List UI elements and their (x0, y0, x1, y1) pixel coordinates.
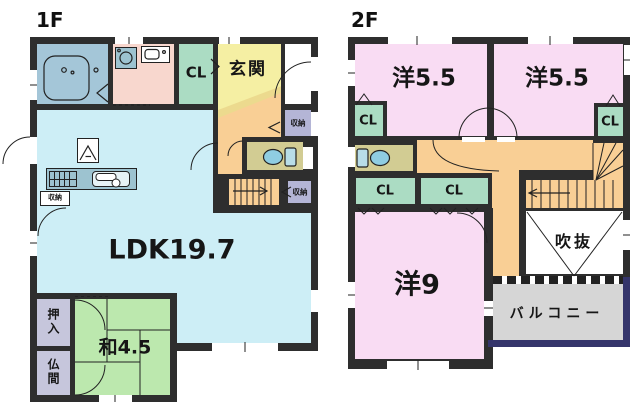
door-arc-kitchen-1f (38, 208, 66, 236)
door-arc-toilet-2f (433, 140, 499, 171)
label-washitsu: 和4.5 (99, 339, 152, 358)
door-arc-entrance-1f (275, 62, 311, 98)
door-arc-washitsu-lower (75, 365, 105, 395)
label-closet-d-2f: CL (445, 185, 463, 198)
washing-machine-icon (118, 49, 132, 64)
toilet-icon-2f (357, 149, 390, 167)
label-storage-a: 収納 (291, 119, 306, 127)
stairs-treads-2f (532, 180, 613, 208)
plan-symbols-overlay (0, 0, 640, 413)
closet-door-mark-storage-b (282, 187, 291, 197)
label-western55-right: 洋5.5 (525, 68, 589, 91)
label-storage-kitchen: 収納 (48, 195, 62, 202)
label-closet-a-2f: CL (359, 115, 377, 128)
label-closet-c-2f: CL (376, 185, 394, 198)
floorplan-canvas: 1F 2F (0, 0, 640, 413)
label-ldk: LDK19.7 (108, 237, 235, 264)
label-butsuma: 仏間 (47, 358, 59, 386)
closet-door-mark-1f-cl (211, 59, 219, 74)
toilet-icon-1f (264, 148, 297, 166)
label-oshiire: 押入 (47, 308, 59, 336)
door-arc-washitsu-upper (75, 300, 105, 330)
closet-door-mark-storage-a (269, 122, 280, 133)
bathtub-icon (44, 56, 108, 102)
bath-folding-door-icon (97, 84, 108, 102)
vanity-sink-icon (145, 50, 165, 60)
label-western55-left: 洋5.5 (392, 68, 456, 91)
label-storage-b: 収納 (293, 188, 308, 196)
stairs-winder-lines-2f (593, 143, 623, 180)
sink-icon (96, 174, 120, 188)
label-balcony: バルコニー (510, 307, 605, 321)
label-genkan: 玄関 (229, 62, 267, 79)
label-closet-b-2f: CL (601, 116, 619, 129)
label-western9: 洋9 (394, 272, 440, 299)
label-fukinuke: 吹抜 (555, 234, 593, 250)
closet-door-marks-2f-top (356, 94, 620, 106)
refrigerator-icon (80, 146, 96, 160)
door-arcs-2f-bedrooms (459, 108, 517, 138)
label-closet-1f: CL (186, 66, 207, 81)
stove-icon (50, 172, 76, 186)
stairs-arrow-1f (233, 187, 267, 195)
door-arc-western9-2f (457, 213, 487, 243)
door-arc-hall-ldk-1f (191, 143, 218, 170)
door-arc-left-exterior-1f (3, 137, 30, 164)
door-arc-toilet-1f (228, 141, 243, 156)
